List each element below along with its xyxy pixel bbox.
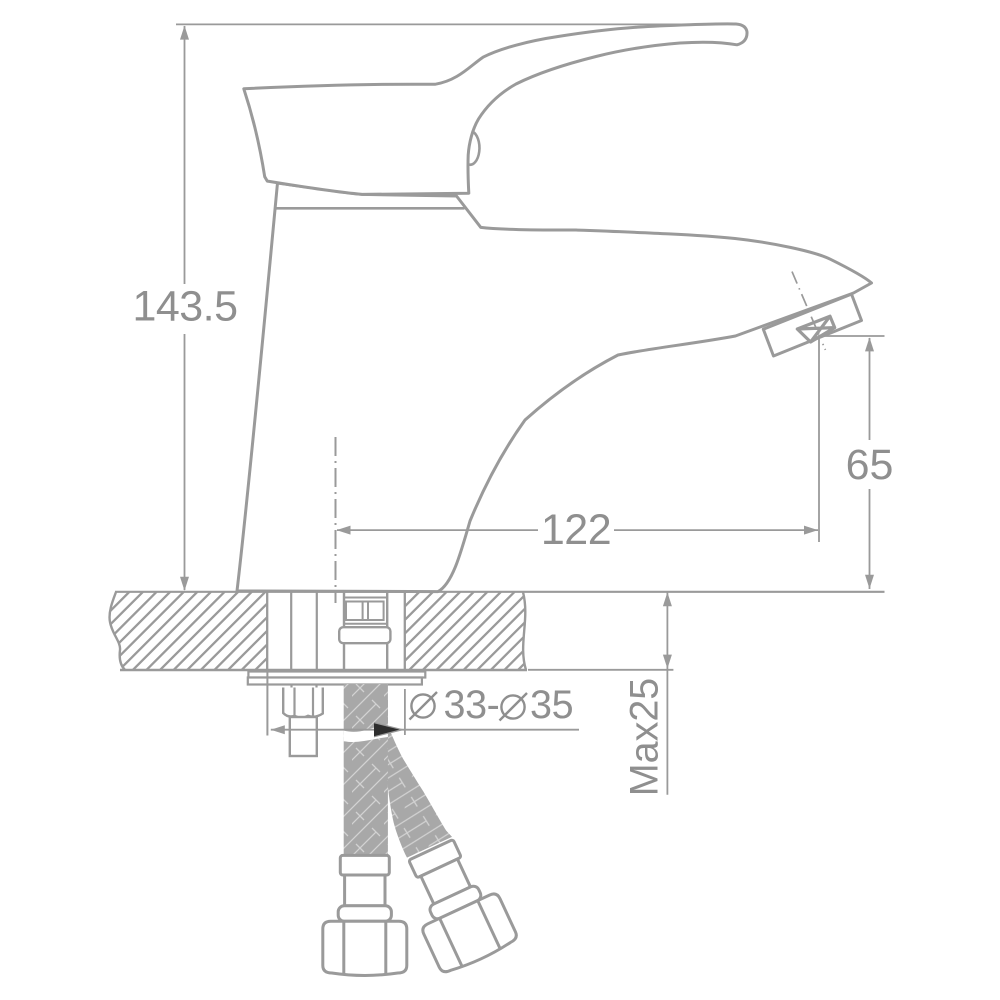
svg-text:65: 65 <box>846 441 894 489</box>
svg-text:33-: 33- <box>444 683 500 727</box>
svg-text:122: 122 <box>541 506 611 554</box>
svg-text:143.5: 143.5 <box>132 283 237 331</box>
svg-text:35: 35 <box>530 683 573 727</box>
svg-text:Max25: Max25 <box>623 678 667 797</box>
